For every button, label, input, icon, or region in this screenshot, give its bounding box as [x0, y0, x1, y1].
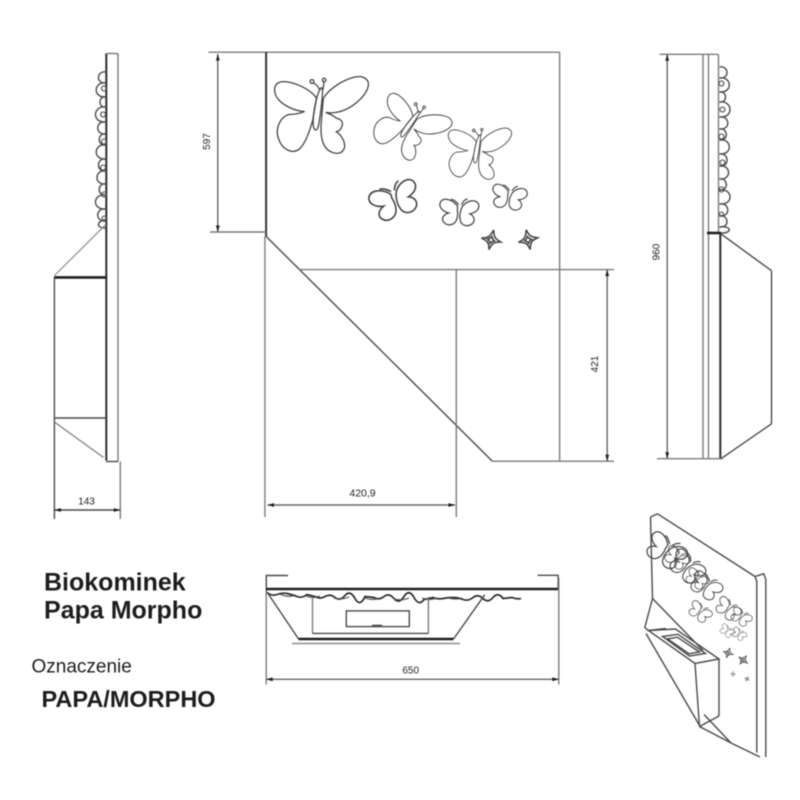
svg-text:597: 597 — [202, 133, 213, 150]
svg-text:420,9: 420,9 — [349, 488, 375, 500]
svg-text:421: 421 — [590, 355, 601, 372]
svg-text:960: 960 — [652, 243, 663, 260]
svg-text:Papa Morpho: Papa Morpho — [44, 597, 202, 625]
svg-text:Biokominek: Biokominek — [44, 569, 186, 597]
svg-text:PAPA/MORPHO: PAPA/MORPHO — [42, 686, 216, 712]
svg-text:Oznaczenie: Oznaczenie — [32, 657, 132, 678]
svg-text:650: 650 — [402, 666, 419, 677]
svg-text:143: 143 — [78, 497, 95, 508]
